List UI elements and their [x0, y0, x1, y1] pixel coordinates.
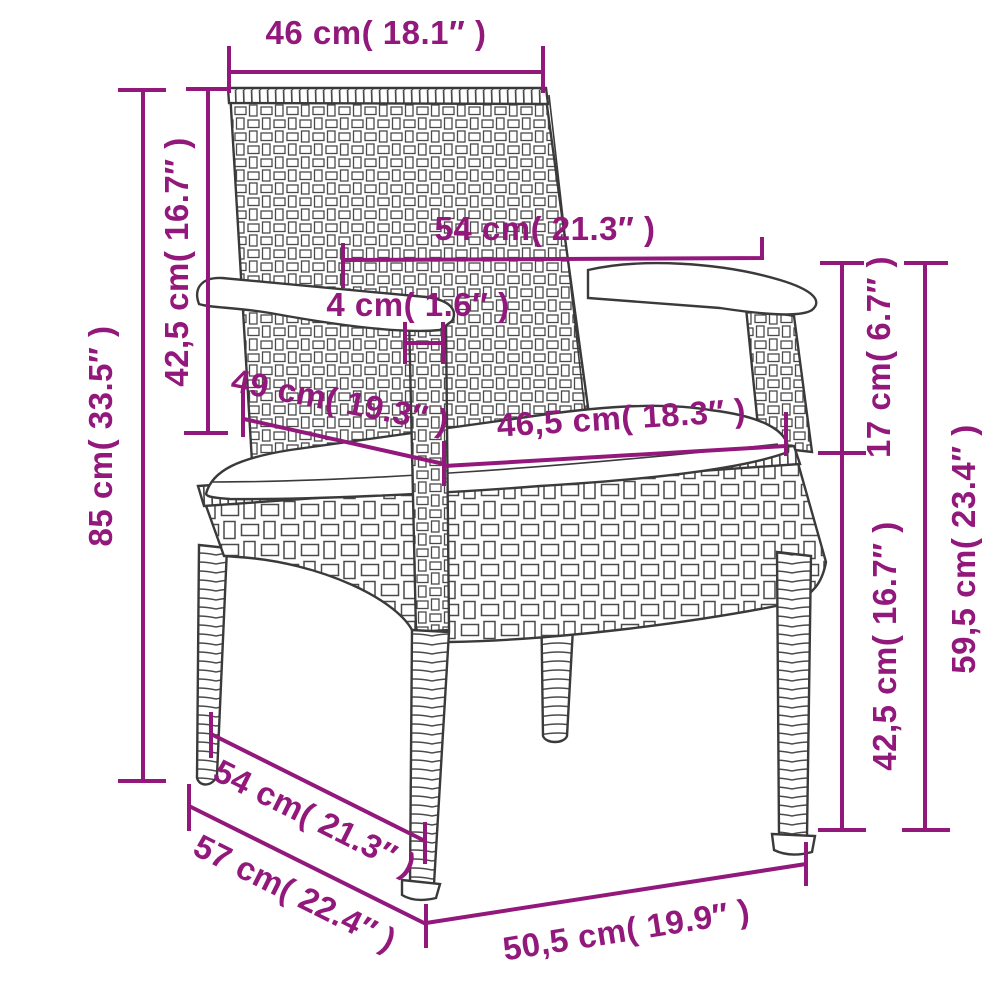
front-right-foot — [772, 834, 815, 855]
dim-width-at-armrests-label: 54 cm( 21.3″ ) — [435, 210, 656, 247]
front-left-foot — [402, 880, 440, 900]
dim-armrest-height-lower-label: 42,5 cm( 16.7″ ) — [866, 521, 903, 770]
chair-dimension-svg: 46 cm( 18.1″ ) 85 cm( 33.5″ ) 42,5 cm( 1… — [0, 0, 1000, 1000]
backrest-top-rim — [228, 88, 548, 104]
dim-armrest-strut-label: 4 cm( 1.6″ ) — [326, 286, 509, 323]
dim-armrest-height-total-label: 59,5 cm( 23.4″ ) — [945, 424, 982, 673]
dim-total-height-label: 85 cm( 33.5″ ) — [82, 326, 119, 547]
dimension-diagram: 46 cm( 18.1″ ) 85 cm( 33.5″ ) 42,5 cm( 1… — [0, 0, 1000, 1000]
dim-backrest-height-label: 42,5 cm( 16.7″ ) — [158, 137, 195, 386]
dim-backrest-above-armrest-label: 17 cm( 6.7″ ) — [860, 256, 897, 458]
dim-back-width-top-label: 46 cm( 18.1″ ) — [266, 14, 487, 51]
front-right-leg — [777, 552, 811, 844]
